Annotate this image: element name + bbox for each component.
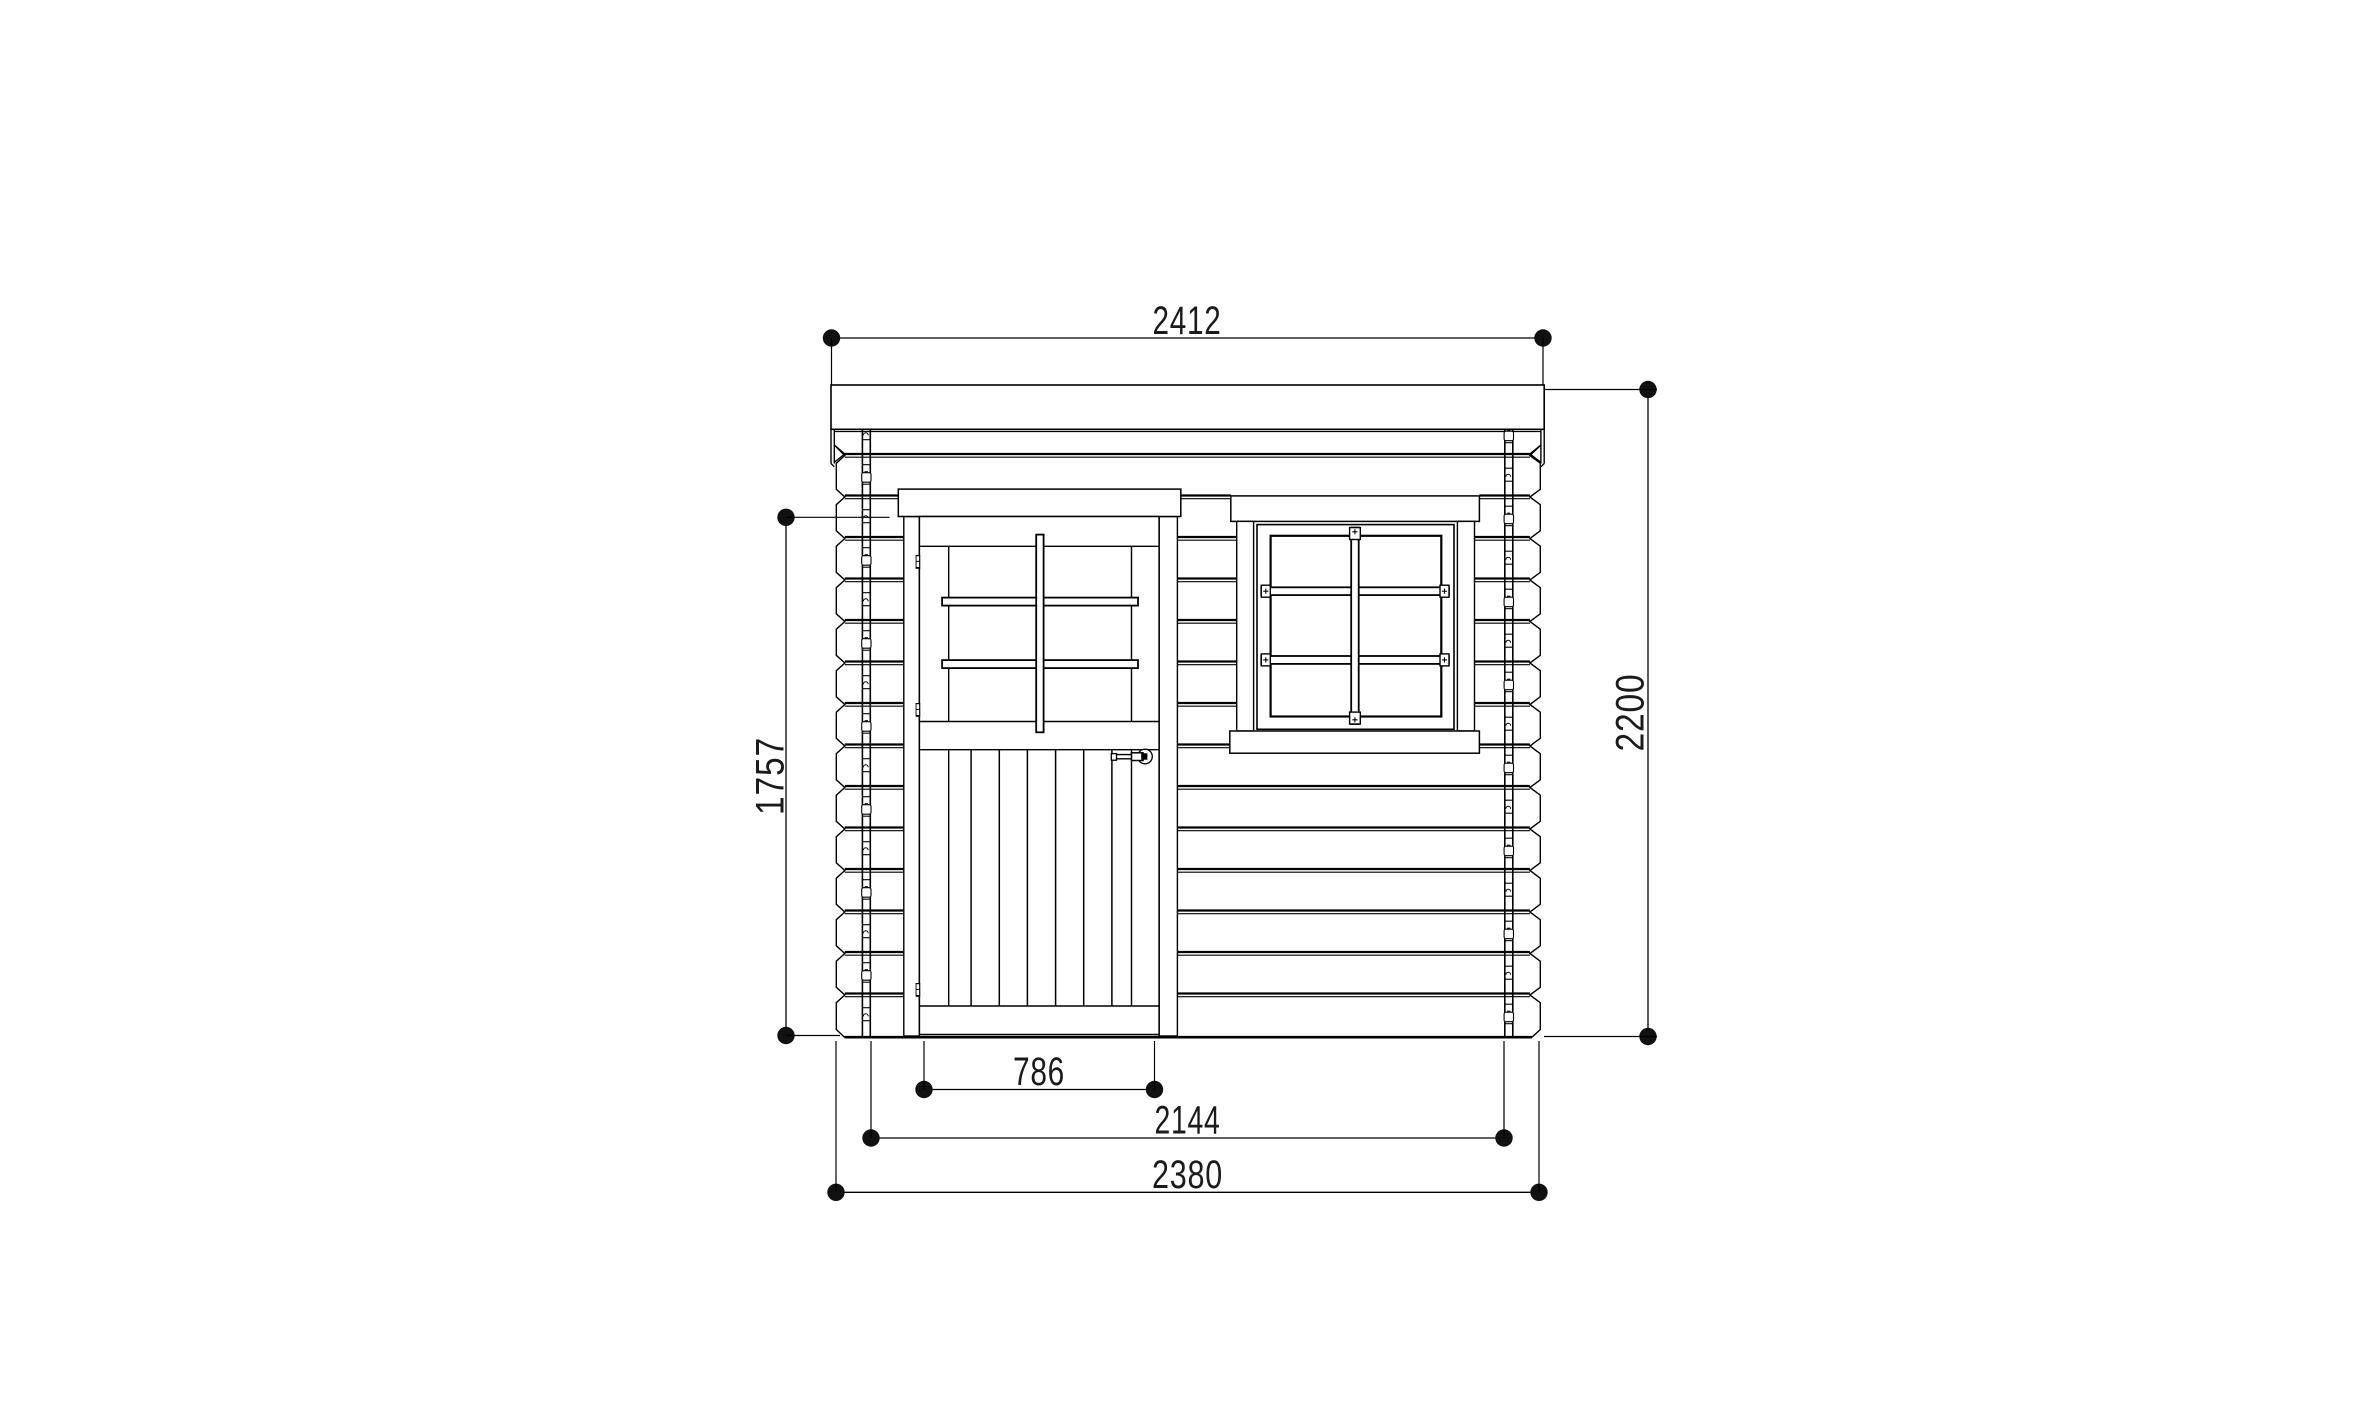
svg-text:2380: 2380 [1152, 1153, 1223, 1197]
svg-text:2200: 2200 [1609, 674, 1653, 752]
svg-text:1757: 1757 [749, 737, 793, 815]
svg-text:2412: 2412 [1153, 299, 1222, 343]
svg-text:786: 786 [1013, 1050, 1065, 1094]
svg-text:2144: 2144 [1155, 1099, 1221, 1143]
